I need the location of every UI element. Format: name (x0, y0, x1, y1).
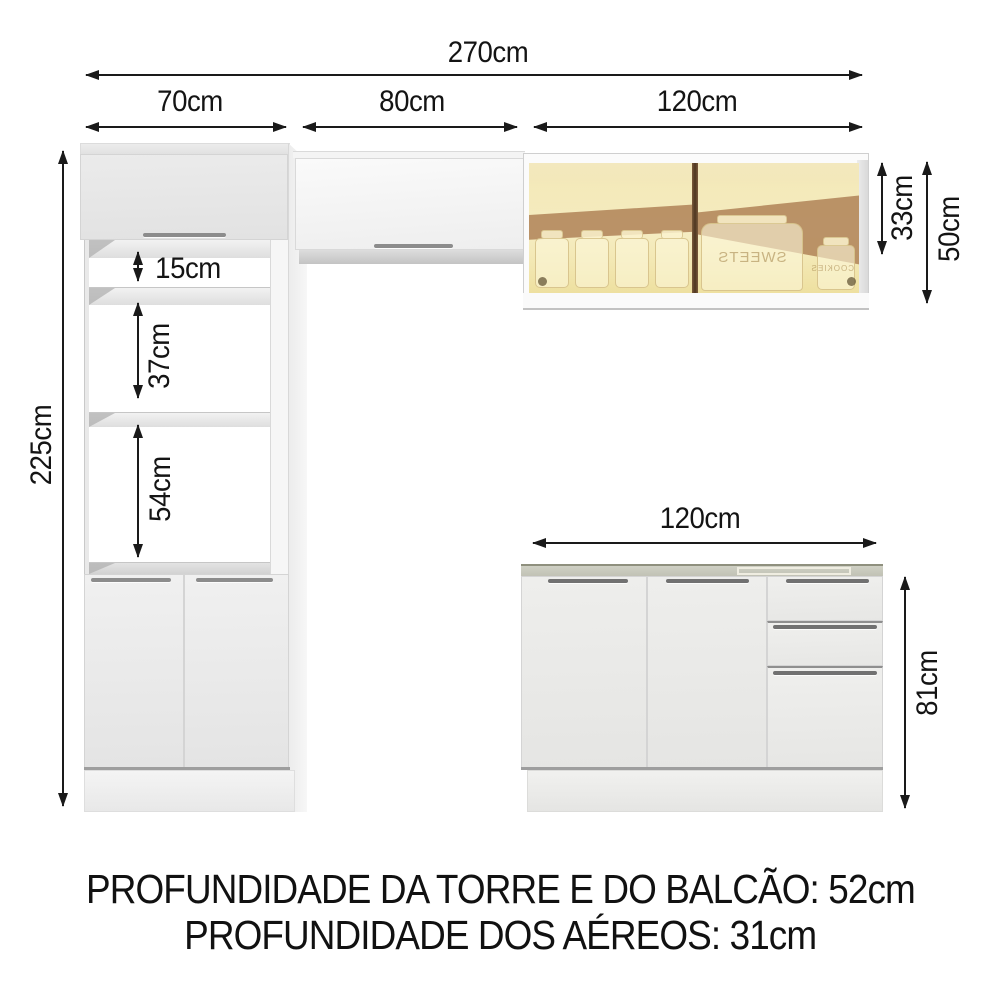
dim-niche-bottom: 54cm (144, 453, 178, 524)
dim-total-height: 225cm (25, 401, 59, 489)
dim-counter-height: 81cm (911, 647, 945, 718)
dim-niche-middle: 37cm (143, 320, 177, 391)
dim-counter-width: 120cm (656, 502, 744, 536)
kitchen-dimension-diagram: SWEETS COOKIES (0, 0, 1000, 1000)
dim-glass-cabinet-height: 50cm (933, 193, 967, 264)
dim-glass-door-height: 33cm (886, 172, 920, 243)
dim-niche-top: 15cm (152, 252, 223, 286)
footer-depth-uppers: PROFUNDIDADE DOS AÉREOS: 31cm (0, 912, 1000, 959)
footer-depth-tower-counter: PROFUNDIDADE DA TORRE E DO BALCÃO: 52cm (0, 866, 1000, 913)
dim-glass-cabinet-width: 120cm (653, 85, 741, 119)
dim-tower-width: 70cm (154, 85, 225, 119)
dim-total-width: 270cm (444, 36, 532, 70)
dim-upper-cabinet-width: 80cm (376, 85, 447, 119)
